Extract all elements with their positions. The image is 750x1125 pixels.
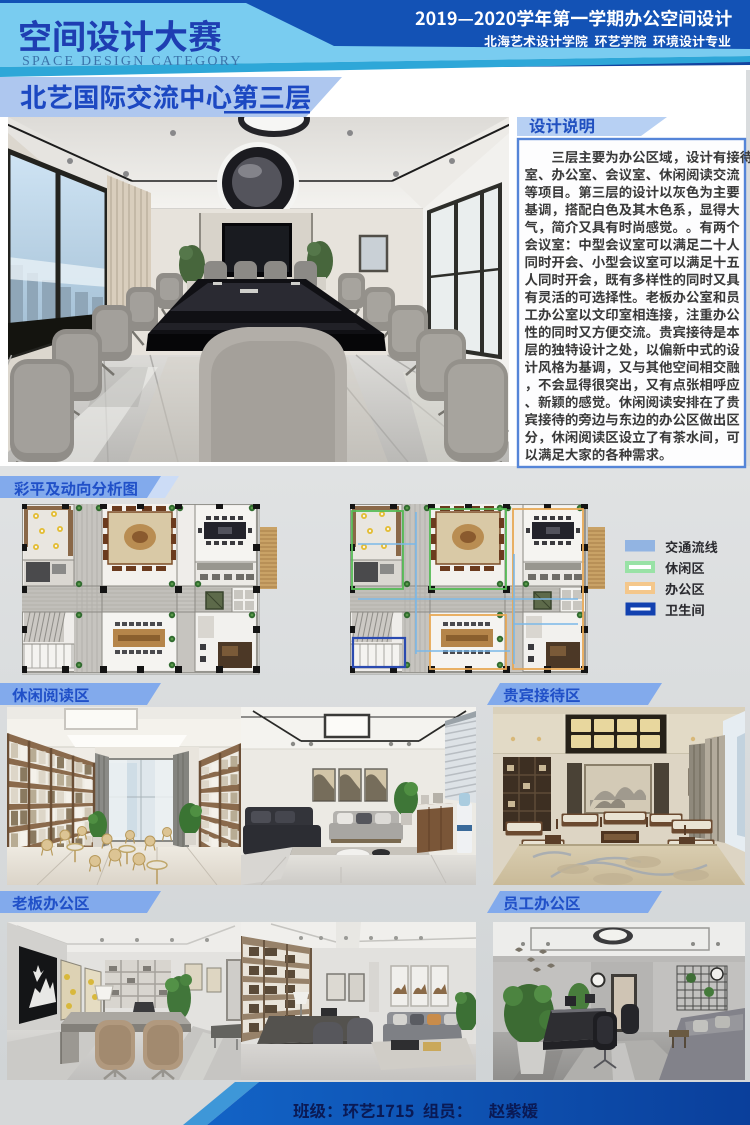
svg-text:SPACE DESIGN CATEGORY: SPACE DESIGN CATEGORY bbox=[22, 54, 243, 69]
